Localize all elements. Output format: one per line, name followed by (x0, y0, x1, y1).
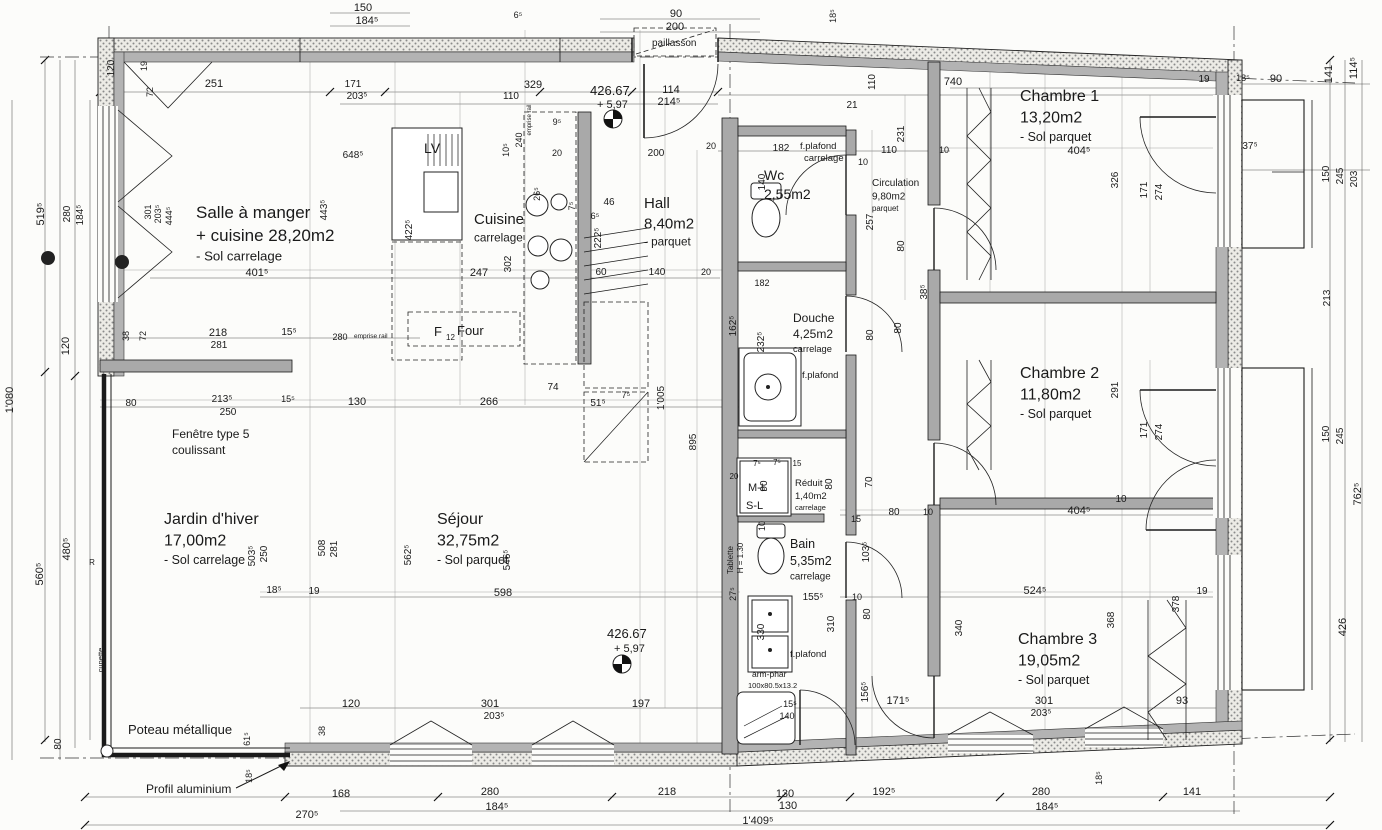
survey-marks (41, 110, 631, 673)
room-floor: carrelage (790, 571, 831, 582)
dimension-label: 6⁵ (514, 10, 523, 20)
room-floor: - Sol carrelage (196, 249, 282, 264)
dimension-label: 18⁵ (1236, 73, 1250, 83)
dimension-label: 231 (896, 125, 907, 142)
dimension-label: 60 (595, 267, 607, 278)
dimension-label: 560⁵ (34, 563, 46, 586)
dimension-label: 168 (332, 788, 350, 800)
dimension-label: 274 (1154, 183, 1165, 200)
dimension-label: 27⁵ (728, 587, 738, 601)
room-name: Réduit (795, 478, 823, 489)
balconies (1242, 100, 1312, 690)
level-mark-value: + 5,97 (597, 99, 628, 111)
dimension-label: 15⁵ (281, 327, 296, 338)
dimension-label: 90 (670, 8, 682, 20)
dimension-label: 200 (666, 21, 684, 33)
dimension-label: 26⁵ (532, 187, 542, 201)
dimension-label: 240 (514, 132, 524, 147)
dimension-label: 120 (60, 337, 72, 355)
label-seche-linge: S-L (746, 500, 763, 512)
dimension-label: 10 (923, 507, 933, 517)
level-symbol (604, 110, 622, 128)
dimension-label: 329 (524, 79, 542, 91)
dimension-label: 15⁵ (281, 394, 295, 404)
stairs (584, 228, 648, 462)
dimension-label: 280 (481, 786, 499, 798)
dimension-label: 197 (632, 698, 650, 710)
dimension-label: 281 (329, 540, 340, 557)
toilet-icon (752, 199, 780, 237)
dimension-label: 19 (1198, 74, 1210, 85)
annotation-armoire-pharmacie: arm-phar (752, 669, 787, 679)
dimension-label: 232⁵ (756, 332, 767, 353)
annotation-fenetre-type: coulissant (172, 443, 226, 457)
dimension-label: 895 (688, 433, 699, 450)
label-four: Four (457, 323, 484, 338)
dimension-label: 20 (706, 141, 716, 151)
dimension-label: 18⁵ (1094, 771, 1104, 785)
dimension-label: 38⁵ (919, 284, 930, 299)
dimension-label: 7⁵ (773, 458, 781, 467)
dimension-label: 18⁵ (828, 9, 838, 23)
room-floor: - Sol parquet (437, 553, 509, 567)
dimension-label: 1'005 (656, 385, 667, 410)
dimension-label: 203⁵ (153, 204, 163, 223)
dimension-label: 18⁵ (244, 769, 254, 783)
level-mark-value: 426.67 (590, 83, 630, 98)
room-name: Chambre 2 (1020, 365, 1099, 382)
dimension-label: 171 (345, 79, 362, 90)
dimension-label: 18⁵ (266, 585, 281, 596)
dimension-label: 301 (1035, 695, 1053, 707)
room-area: 2,55m2 (764, 186, 811, 202)
dimension-label: 1'409⁵ (742, 815, 773, 827)
dimension-label: 184⁵ (486, 801, 509, 813)
dimension-label: 503⁵ (247, 546, 258, 567)
room-floor: - Sol parquet (1020, 407, 1092, 421)
dimension-label: 140 (649, 267, 666, 278)
room-area: 9,80m2 (872, 192, 906, 203)
dimension-label: 648⁵ (343, 150, 364, 161)
dimension-label: 280 (332, 332, 347, 342)
dimension-label: 218 (209, 327, 227, 339)
annotation-cunette: cunette (96, 648, 105, 673)
dimension-label: 310 (826, 615, 837, 632)
dimension-label: 1'080 (4, 387, 16, 414)
room-name: Hall (644, 195, 670, 212)
dimension-label: 280 (1032, 786, 1050, 798)
dimension-label: 200 (648, 148, 665, 159)
dimension-label: 70 (864, 476, 875, 488)
annotation-tablette: H = 1.30 (736, 542, 745, 573)
dimension-label: 184⁵ (356, 15, 379, 27)
island-sink (424, 172, 458, 212)
room-area: 5,35m2 (790, 554, 832, 568)
dimension-label: 404⁵ (1068, 145, 1091, 157)
dimension-label: 301 (143, 204, 153, 219)
dimension-label: 203⁵ (347, 91, 368, 102)
dimension-label: 61⁵ (242, 732, 252, 746)
dimension-label: 280 (62, 205, 73, 222)
toilet-icon (758, 538, 784, 574)
room-name: Salle à manger (196, 203, 311, 222)
dimension-label: 171 (1139, 181, 1150, 198)
annotation-faux-plafond: f.plafond (790, 649, 826, 660)
annotation-tablette: Tablette (726, 545, 735, 574)
dimension-label: 7⁵ (567, 201, 577, 210)
dimension-label: 562⁵ (403, 545, 414, 566)
annotation-profil-aluminium: Profil aluminium (146, 782, 231, 796)
dimension-label: 281 (211, 340, 228, 351)
dimension-label: 150 (1321, 425, 1332, 442)
dimension-label: 110 (881, 145, 897, 156)
dimension-label: 184⁵ (1036, 801, 1059, 813)
label-lave-vaisselle: LV (424, 140, 441, 156)
dimension-label: 10 (858, 157, 868, 167)
dimension-label: 340 (954, 619, 965, 636)
annotation-faux-plafond: carrelage (804, 153, 844, 164)
dimension-label: 213 (1322, 289, 1333, 306)
dimension-label: 80 (896, 240, 907, 252)
dimension-label: 103⁵ (861, 542, 872, 563)
room-name: Séjour (437, 511, 484, 528)
dimension-label: 110 (867, 74, 878, 90)
dimension-label: 130 (348, 396, 366, 408)
level-mark-value: 426.67 (607, 626, 647, 641)
room-floor: carrelage (795, 503, 826, 512)
dimension-label: 162⁵ (728, 316, 739, 337)
room-floor: carrelage (793, 344, 832, 354)
dimension-label: 19 (139, 61, 149, 71)
dimension-label: 182 (754, 278, 769, 288)
axis-lines (40, 24, 1355, 814)
dimension-label: 150 (1321, 165, 1332, 182)
dimension-label: 80 (865, 329, 876, 341)
dimension-label: 301 (481, 698, 499, 710)
room-name: Bain (790, 537, 815, 551)
dimension-label: 114 (662, 84, 680, 96)
dimension-label: 245 (1335, 167, 1346, 184)
room-area: 19,05m2 (1018, 653, 1080, 670)
room-area: 4,25m2 (793, 327, 833, 341)
dimension-label: 443⁵ (319, 200, 330, 221)
dimension-label: 80 (824, 478, 835, 490)
annotation-poteau-metallique: Poteau métallique (128, 722, 232, 737)
dimension-label: 245 (1335, 427, 1346, 444)
dimension-label: 302 (503, 255, 514, 272)
annotation-emprise-rail: emprise rail (354, 333, 388, 340)
dimension-label: 401⁵ (246, 267, 269, 279)
dimension-label: 90 (1270, 73, 1282, 85)
label-machine-a-laver: M-L (748, 482, 767, 494)
label-frigo: 12 (446, 333, 455, 342)
dimension-label: 80 (862, 608, 873, 620)
dimension-label: 20 (701, 267, 711, 277)
dimension-label: 214⁵ (658, 96, 681, 108)
dimension-label: 203⁵ (484, 711, 505, 722)
room-name: Douche (793, 311, 835, 325)
dimension-label: 80 (125, 398, 137, 409)
dimension-label: 10⁵ (501, 143, 511, 157)
dimension-label: 598 (494, 587, 512, 599)
annotation-faux-plafond: f.plafond (802, 370, 838, 381)
dimension-label: 80 (893, 322, 904, 334)
dimension-label: 120 (342, 698, 360, 710)
dimension-label: 762⁵ (1352, 483, 1364, 506)
dimension-label: 508 (317, 539, 328, 556)
dimension-label: 213⁵ (212, 394, 233, 405)
dimension-label: 257 (865, 213, 876, 230)
room-floor: parquet (872, 204, 899, 213)
poteau-metallique-symbol (101, 745, 113, 757)
room-area: 1,40m2 (795, 491, 827, 502)
dimension-label: 130 (776, 788, 794, 800)
dimension-label: 20 (730, 472, 739, 481)
dimension-label: 184⁵ (75, 205, 86, 226)
room-area: 32,75m2 (437, 533, 499, 550)
survey-dot (115, 255, 129, 269)
room-area: + cuisine 28,20m2 (196, 226, 334, 245)
dimension-label: 524⁵ (1024, 585, 1047, 597)
dimension-label: 141 (1323, 65, 1335, 83)
dimension-label: 130 (779, 800, 797, 812)
dimension-label: 72 (145, 87, 155, 97)
terrace-outline (1242, 368, 1304, 690)
survey-dot (41, 251, 55, 265)
floorplan-canvas: 150184⁵6⁵9020018⁵1201972251171203⁵329110… (0, 0, 1382, 830)
dimension-label: 38 (317, 726, 327, 736)
dimension-label: 192⁵ (873, 786, 896, 798)
dimension-label: 15 (851, 514, 861, 524)
dimension-label: 21 (846, 100, 858, 111)
dimension-label: 10 (939, 145, 949, 155)
dimension-label: 10 (852, 592, 862, 602)
dimension-label: 7⁵ (622, 390, 631, 400)
dimension-label: 203⁵ (1031, 708, 1052, 719)
dimension-label: 46 (603, 197, 615, 208)
dimension-label: 330 (756, 623, 767, 640)
dimension-label: 740 (944, 76, 962, 88)
dimension-label: 19 (1196, 586, 1208, 597)
dimension-label: 378 (1171, 595, 1182, 612)
dimension-label: 72 (138, 331, 148, 341)
dimension-label: 519⁵ (35, 203, 47, 226)
dimension-label: 404⁵ (1068, 505, 1091, 517)
annotation-fenetre-type: Fenêtre type 5 (172, 427, 250, 441)
dimension-label: 37⁵ (1242, 141, 1257, 152)
room-area: 11,80m2 (1020, 387, 1081, 404)
dimension-label: 19 (308, 586, 320, 597)
dimension-label: 444⁵ (164, 206, 174, 225)
dimension-label: 218 (658, 786, 676, 798)
annotation-emprise-rail: emprise rail (527, 104, 533, 135)
dimension-label: 203 (1349, 170, 1360, 187)
dimension-label: 80 (53, 738, 64, 750)
dimension-label: 51⁵ (590, 398, 605, 409)
annotation-faux-plafond: f.plafond (800, 141, 836, 152)
annotation-paillasson: paillasson (652, 38, 696, 49)
dimension-label: 114⁵ (1348, 57, 1360, 79)
floor-plan-sheet: 150184⁵6⁵9020018⁵1201972251171203⁵329110… (0, 0, 1382, 830)
room-floor: - parquet (644, 236, 692, 249)
dimension-label: 6⁵ (591, 211, 600, 221)
dimension-label: 247 (470, 267, 488, 279)
dimension-label: 422⁵ (404, 220, 415, 241)
hob-plate-icon (550, 239, 572, 261)
dimension-label: 7⁵ (753, 459, 761, 468)
dimension-label: 93 (1176, 695, 1188, 707)
dimension-label: 10 (757, 521, 767, 531)
room-floor: - Sol carrelage (164, 553, 245, 567)
label-frigo: F (434, 324, 442, 339)
dimension-label: 110 (503, 91, 519, 102)
room-name: Jardin d'hiver (164, 511, 259, 528)
dimension-label: 20 (552, 148, 562, 158)
room-area: 17,00m2 (164, 533, 226, 550)
dimension-label: 171 (1139, 421, 1150, 438)
dimension-label: 15⁵ (783, 699, 797, 709)
dimension-label: 222⁵ (593, 228, 604, 249)
dimension-label: 38 (121, 331, 131, 341)
balcony-outline (1242, 100, 1304, 248)
dimension-label: 74 (547, 382, 559, 393)
dimension-label: 156⁵ (860, 682, 871, 703)
annotation-armoire-pharmacie: 100x80.5x13.2 (748, 681, 797, 690)
dimension-label: 270⁵ (296, 809, 319, 821)
room-name: Wc (764, 167, 784, 183)
dimension-label: 9⁵ (553, 117, 562, 127)
room-name: Cuisine (474, 211, 524, 228)
dimension-label: 274 (1154, 423, 1165, 440)
dimension-label: 182 (773, 143, 790, 154)
dimension-label: 426 (1337, 618, 1349, 636)
room-name: Chambre 3 (1018, 631, 1097, 648)
dimension-label: 150 (354, 2, 372, 14)
entrance-door-arc (644, 64, 718, 138)
room-name: Chambre 1 (1020, 88, 1099, 105)
room-floor: carrelage (474, 231, 523, 244)
dimension-label: 140 (779, 711, 794, 721)
dimension-label: 368 (1106, 611, 1117, 628)
dimension-label: 155⁵ (803, 592, 824, 603)
dimension-label: 120 (106, 59, 117, 76)
room-floor: - Sol parquet (1018, 673, 1090, 687)
dimension-label: 80 (888, 507, 900, 518)
dimension-label: R (89, 558, 95, 567)
hob-plate-icon (531, 271, 549, 289)
dimension-label: 480⁵ (61, 538, 73, 561)
dimension-label: 326 (1110, 171, 1121, 188)
dimension-label: 15 (793, 459, 802, 468)
dimension-chain-lines (12, 13, 1370, 829)
room-floor: - Sol parquet (1020, 130, 1092, 144)
hob-plate-icon (528, 236, 548, 256)
dimension-label: 141 (1183, 786, 1201, 798)
room-area: 8,40m2 (644, 215, 694, 232)
dimension-label: 250 (259, 545, 270, 562)
sink-bowl-icon (551, 194, 567, 210)
level-mark-value: + 5,97 (614, 643, 645, 655)
room-name: Circulation (872, 178, 919, 189)
dimension-label: 266 (480, 396, 498, 408)
level-symbol (613, 655, 631, 673)
dimension-label: 251 (205, 78, 223, 90)
room-area: 13,20m2 (1020, 110, 1082, 127)
dimension-label: 171⁵ (887, 695, 910, 707)
dimension-label: 291 (1110, 381, 1121, 398)
dimension-label: 10 (1115, 494, 1127, 505)
dimension-label: 250 (220, 407, 237, 418)
